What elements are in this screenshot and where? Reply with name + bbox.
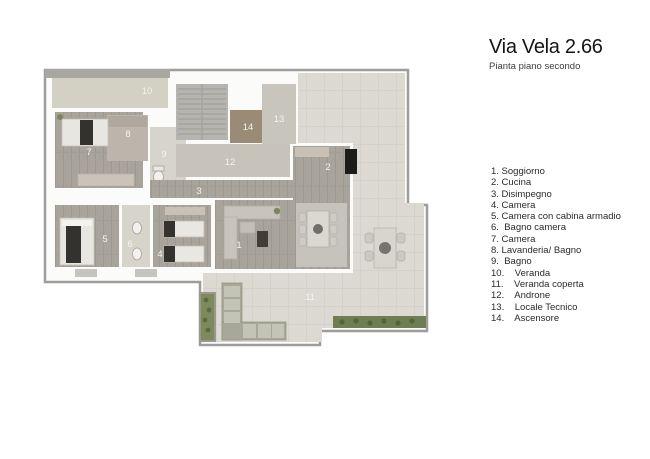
page-title: Via Vela 2.66: [489, 36, 644, 58]
chair: [397, 251, 405, 261]
room-label-12: 12: [225, 157, 236, 168]
balcony-unit: [75, 269, 97, 277]
page: 1 2 3 4 5 6 7 8 9 10 11 12 13 14 Via Vel…: [0, 0, 650, 459]
bed-duvet: [66, 226, 81, 263]
legend-item: 14. Ascensore: [491, 313, 646, 324]
room-label-14: 14: [243, 122, 254, 133]
chair: [299, 213, 306, 222]
bedroom-5: [55, 205, 119, 267]
bed-pillow-dark: [164, 221, 175, 237]
chair: [330, 237, 337, 246]
kitchen-fridge: [345, 149, 357, 174]
room-label-3: 3: [196, 186, 201, 197]
room-label-10: 10: [142, 86, 153, 97]
chair: [299, 237, 306, 246]
legend-item: 2. Cucina: [491, 177, 646, 188]
legend-item: 8. Lavanderia/ Bagno: [491, 245, 646, 256]
sofa-arm: [224, 217, 237, 259]
room-label-8: 8: [125, 129, 130, 140]
room-label-4: 4: [157, 249, 162, 260]
legend-item: 3. Disimpegno: [491, 189, 646, 200]
legend-item: 11. Veranda coperta: [491, 279, 646, 290]
kitchen: [293, 146, 357, 200]
dining-centerpiece: [313, 224, 323, 234]
room-label-7: 7: [86, 147, 91, 158]
room-label-5: 5: [102, 234, 107, 245]
legend-item: 9. Bagno: [491, 256, 646, 267]
chair: [365, 251, 373, 261]
legend-item: 1. Soggiorno: [491, 166, 646, 177]
bed-pillow: [62, 220, 92, 226]
bed-pillow-dark: [164, 246, 175, 262]
legend-item: 5. Camera con cabina armadio: [491, 211, 646, 222]
coffee-table: [257, 231, 268, 247]
wardrobe: [78, 174, 134, 186]
toilet-tank: [153, 166, 164, 171]
bed-duvet: [80, 120, 93, 145]
planter-vertical: [199, 292, 216, 342]
room-label-11: 11: [305, 292, 315, 303]
legend-item: 6. Bagno camera: [491, 222, 646, 233]
chair: [365, 233, 373, 243]
info-panel: Via Vela 2.66 Pianta piano secondo: [489, 36, 644, 72]
chair: [299, 225, 306, 234]
sofa-chaise: [240, 222, 255, 233]
room-label-1: 1: [236, 240, 241, 251]
room-label-6: 6: [127, 239, 132, 250]
living-room: [215, 200, 350, 269]
legend-item: 7. Camera: [491, 234, 646, 245]
legend-item: 13. Locale Tecnico: [491, 302, 646, 313]
chair: [330, 213, 337, 222]
legend-item: 10. Veranda: [491, 268, 646, 279]
room-disimpegno-floor: [150, 180, 298, 198]
room-label-9: 9: [161, 149, 166, 160]
kitchen-counter: [295, 147, 329, 157]
laundry-counter: [108, 116, 147, 127]
shelf: [165, 207, 205, 215]
staircase: [176, 84, 228, 140]
chair: [397, 233, 405, 243]
plant-icon: [57, 114, 63, 120]
balcony-unit: [135, 269, 157, 277]
toilet-icon: [133, 248, 142, 260]
page-subtitle: Pianta piano secondo: [489, 61, 644, 72]
chair: [330, 225, 337, 234]
outdoor-centerpiece: [379, 242, 391, 254]
room-label-2: 2: [325, 162, 330, 173]
legend-item: 12. Androne: [491, 290, 646, 301]
room-legend: 1. Soggiorno 2. Cucina 3. Disimpegno 4. …: [491, 166, 646, 324]
room-label-13: 13: [274, 114, 285, 125]
hedge-horizontal: [333, 316, 426, 328]
plant-icon: [274, 208, 280, 214]
sink-icon: [133, 222, 142, 234]
legend-item: 4. Camera: [491, 200, 646, 211]
parapet-wall: [45, 69, 170, 78]
bathroom-6: [122, 205, 150, 267]
